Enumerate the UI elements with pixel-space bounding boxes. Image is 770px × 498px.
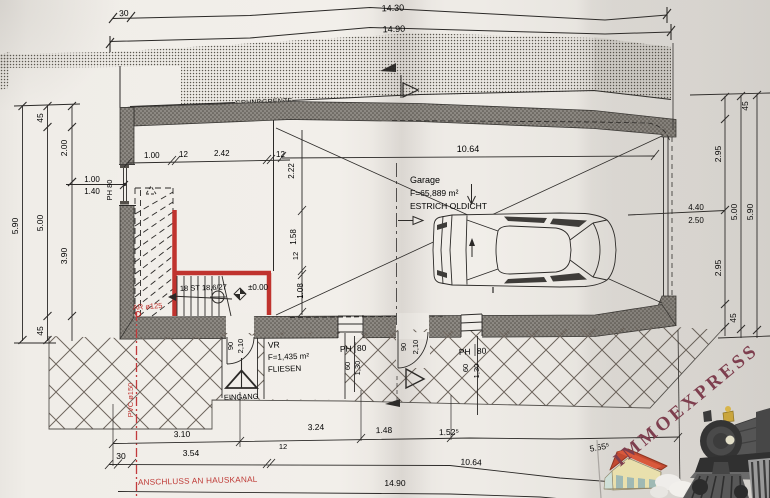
svg-text:1.40: 1.40 [84, 187, 100, 196]
svg-text:12: 12 [279, 442, 287, 451]
svg-text:90: 90 [226, 342, 235, 350]
svg-text:±0.00: ±0.00 [248, 283, 269, 292]
svg-text:3.10: 3.10 [174, 429, 191, 439]
svg-text:PH 80: PH 80 [105, 180, 114, 201]
svg-text:30: 30 [119, 8, 129, 18]
svg-text:80: 80 [357, 343, 367, 353]
svg-text:1,30: 1,30 [353, 361, 362, 376]
svg-text:1.58: 1.58 [289, 229, 298, 245]
svg-text:F=1,435 m²: F=1,435 m² [268, 352, 310, 362]
svg-text:5.00: 5.00 [35, 214, 45, 231]
svg-text:PH: PH [340, 344, 352, 354]
svg-text:12: 12 [291, 252, 300, 260]
svg-text:12: 12 [276, 150, 285, 159]
svg-text:45: 45 [35, 113, 45, 123]
svg-text:3.90: 3.90 [59, 247, 69, 264]
svg-text:60: 60 [343, 362, 352, 370]
svg-text:45: 45 [35, 326, 45, 336]
svg-text:1.08: 1.08 [296, 283, 305, 299]
svg-text:30: 30 [116, 451, 126, 461]
svg-text:2.42: 2.42 [214, 149, 230, 158]
svg-text:3.54: 3.54 [183, 448, 200, 458]
svg-text:2.00: 2.00 [59, 139, 69, 156]
svg-text:3.24: 3.24 [308, 422, 325, 432]
svg-text:1.52⁵: 1.52⁵ [439, 427, 459, 437]
svg-text:2,10: 2,10 [236, 339, 245, 354]
svg-text:VR: VR [268, 340, 280, 350]
svg-text:1.00: 1.00 [84, 175, 100, 184]
svg-text:1.00: 1.00 [144, 151, 160, 160]
svg-text:12: 12 [179, 150, 188, 159]
svg-text:5.90: 5.90 [10, 217, 20, 234]
svg-text:2.22: 2.22 [287, 163, 296, 179]
svg-text:PVC ø150: PVC ø150 [126, 383, 135, 418]
svg-text:FLIESEN: FLIESEN [268, 364, 302, 374]
svg-text:EINGANG: EINGANG [224, 392, 259, 402]
